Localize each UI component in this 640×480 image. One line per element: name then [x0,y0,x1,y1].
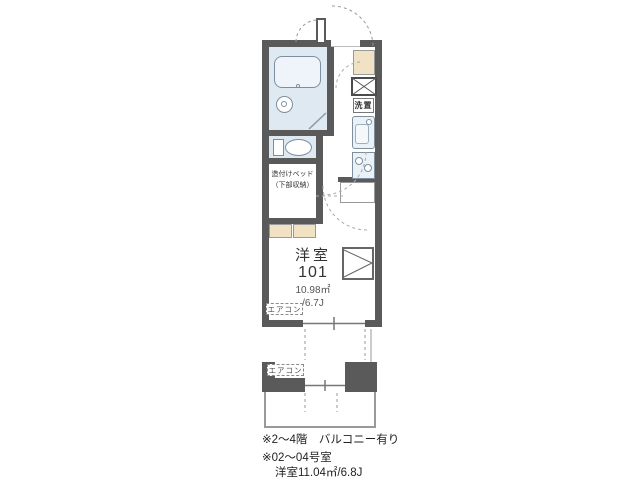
wall-bathroom-right [327,47,334,130]
stove-burner-left-icon [355,157,363,165]
bathtub-drain-icon [296,84,300,88]
toilet-bowl-icon [285,139,312,156]
note-room-range: ※02〜04号室 [262,451,399,467]
window-opening-main [303,320,365,327]
floorplan-page: 造付けベッド （下部収納） 洗置 洋室 101 10.98㎡ /6.7J エアコ… [0,0,640,480]
aircon-label-lower: エアコン [267,364,304,376]
shoe-cabinet [353,50,375,75]
aircon-label-upper-text: エアコン [268,304,302,315]
built-in-bed-label-line1: 造付けベッド [266,170,319,181]
note-balcony: ※2〜4階 バルコニー有り [262,433,399,449]
bed-storage-box-right [293,224,316,238]
wall-toilet-bed [262,158,323,164]
entrance-door-swing-arc-small [296,20,318,42]
stove-burner-right-icon [364,164,372,172]
aircon-label-upper: エアコン [266,303,303,315]
bed-storage-box-left [269,224,292,238]
room-number: 101 [278,264,348,282]
variant-wall-right [345,362,377,392]
wall-bath-toilet [262,130,334,136]
sink-basin-icon [355,124,369,144]
note-room-size: 洋室11.04㎡/6.8J [262,466,399,480]
room-type-label: 洋室 [278,247,348,264]
washing-machine-pan-icon [351,77,377,96]
entrance-opening [331,40,360,47]
built-in-bed-label-line2: （下部収納） [266,181,319,192]
room-area: 10.98㎡ [278,285,348,297]
washer-storage-label-text: 洗置 [355,100,373,111]
aircon-label-lower-text: エアコン [269,365,303,376]
refrigerator-space [340,182,375,203]
washer-storage-label: 洗置 [353,98,374,113]
variant-wall-bottom-left [262,378,305,392]
washbasin-tap-icon [281,101,287,107]
toilet-tank-icon [273,139,284,156]
room-label-block: 洋室 101 10.98㎡ /6.7J [278,247,348,310]
built-in-bed-label: 造付けベッド （下部収納） [266,170,319,191]
entrance-door-leaf [316,18,326,44]
balcony-outline [264,392,376,428]
plan-notes: ※2〜4階 バルコニー有り ※02〜04号室 洋室11.04㎡/6.8J [262,433,399,480]
